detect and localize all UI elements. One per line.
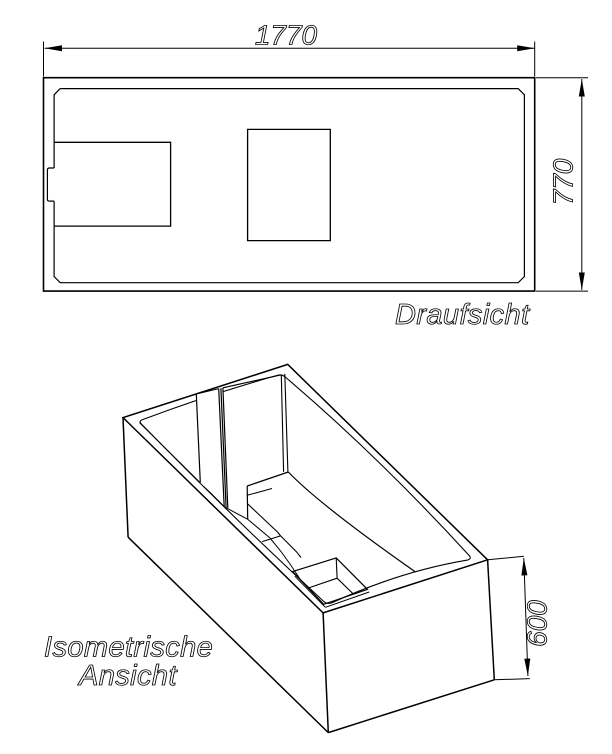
svg-text:600: 600 [522, 600, 553, 647]
svg-text:Isometrische: Isometrische [44, 631, 213, 663]
svg-text:1770: 1770 [255, 20, 318, 51]
svg-text:Ansicht: Ansicht [77, 660, 178, 692]
svg-text:770: 770 [548, 158, 579, 205]
svg-text:Draufsicht: Draufsicht [395, 299, 531, 331]
